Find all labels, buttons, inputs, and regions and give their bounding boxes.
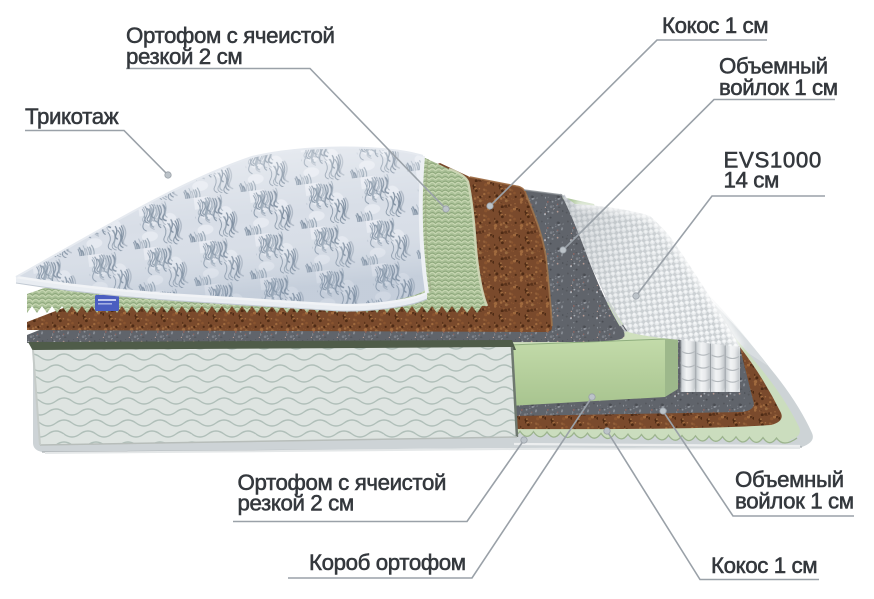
svg-text:войлок 1 см: войлок 1 см bbox=[719, 75, 838, 100]
svg-text:Короб ортофом: Короб ортофом bbox=[309, 550, 466, 575]
svg-text:резкой 2 см: резкой 2 см bbox=[238, 491, 354, 516]
svg-text:войлок 1 см: войлок 1 см bbox=[735, 489, 854, 514]
svg-text:Трикотаж: Трикотаж bbox=[25, 104, 119, 129]
svg-text:Кокос 1 см: Кокос 1 см bbox=[711, 553, 817, 578]
svg-text:14 см: 14 см bbox=[724, 168, 779, 193]
svg-text:Кокос 1 см: Кокос 1 см bbox=[662, 13, 768, 38]
svg-text:резкой 2 см: резкой 2 см bbox=[126, 44, 242, 69]
